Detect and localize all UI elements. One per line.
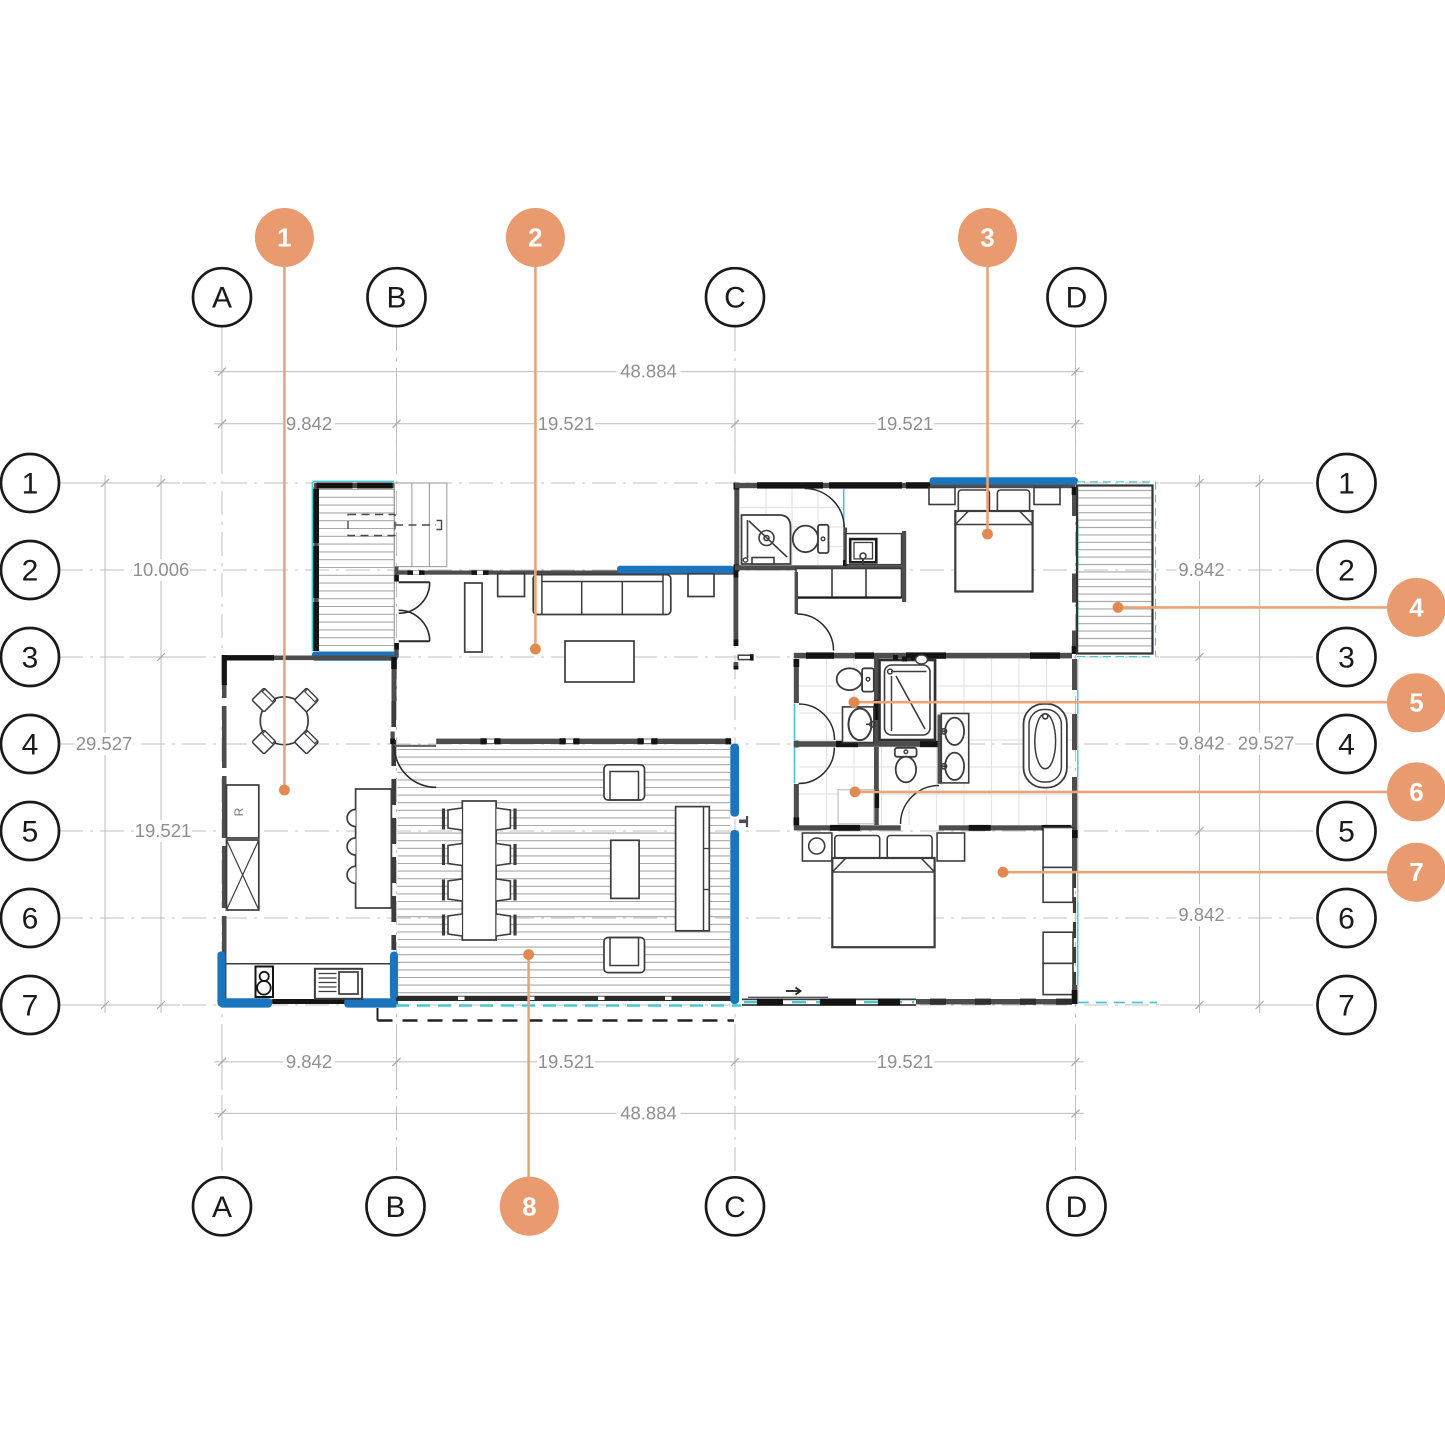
svg-text:19.521: 19.521 [538, 413, 595, 434]
svg-text:48.884: 48.884 [620, 1102, 677, 1123]
svg-text:A: A [212, 282, 232, 315]
svg-text:2: 2 [1338, 555, 1355, 588]
svg-text:19.521: 19.521 [538, 1051, 595, 1072]
svg-text:19.521: 19.521 [135, 820, 192, 841]
svg-text:7: 7 [22, 990, 39, 1023]
svg-text:3: 3 [980, 223, 994, 253]
svg-text:4: 4 [22, 729, 39, 762]
svg-text:B: B [385, 1191, 405, 1224]
svg-text:9.842: 9.842 [1178, 559, 1224, 580]
svg-text:2: 2 [528, 223, 542, 253]
svg-text:9.842: 9.842 [286, 413, 332, 434]
svg-text:7: 7 [1338, 990, 1355, 1023]
svg-text:19.521: 19.521 [877, 1051, 934, 1072]
svg-text:4: 4 [1338, 729, 1355, 762]
svg-text:5: 5 [22, 816, 39, 849]
svg-text:1: 1 [22, 468, 39, 501]
svg-text:29.527: 29.527 [1238, 733, 1295, 754]
svg-text:4: 4 [1409, 592, 1424, 622]
svg-text:29.527: 29.527 [76, 733, 133, 754]
svg-text:3: 3 [22, 642, 39, 675]
svg-text:5: 5 [1338, 816, 1355, 849]
svg-text:A: A [212, 1191, 232, 1224]
svg-text:2: 2 [22, 555, 39, 588]
svg-text:7: 7 [1409, 857, 1423, 887]
svg-text:6: 6 [1409, 777, 1423, 807]
svg-text:9.842: 9.842 [1178, 733, 1224, 754]
svg-text:C: C [724, 1191, 746, 1224]
svg-text:9.842: 9.842 [286, 1051, 332, 1072]
svg-text:5: 5 [1409, 688, 1423, 718]
svg-text:19.521: 19.521 [877, 413, 934, 434]
svg-text:10.006: 10.006 [133, 559, 190, 580]
svg-text:R: R [232, 807, 246, 816]
svg-text:1: 1 [277, 223, 291, 253]
svg-text:9.842: 9.842 [1178, 904, 1224, 925]
svg-text:D: D [1066, 282, 1088, 315]
svg-text:D: D [1066, 1191, 1088, 1224]
svg-text:8: 8 [522, 1191, 536, 1221]
svg-text:1: 1 [1338, 468, 1355, 501]
svg-text:3: 3 [1338, 642, 1355, 675]
svg-text:6: 6 [1338, 903, 1355, 936]
svg-text:48.884: 48.884 [620, 361, 677, 382]
svg-text:6: 6 [22, 903, 39, 936]
svg-text:C: C [724, 282, 746, 315]
svg-text:B: B [386, 282, 406, 315]
